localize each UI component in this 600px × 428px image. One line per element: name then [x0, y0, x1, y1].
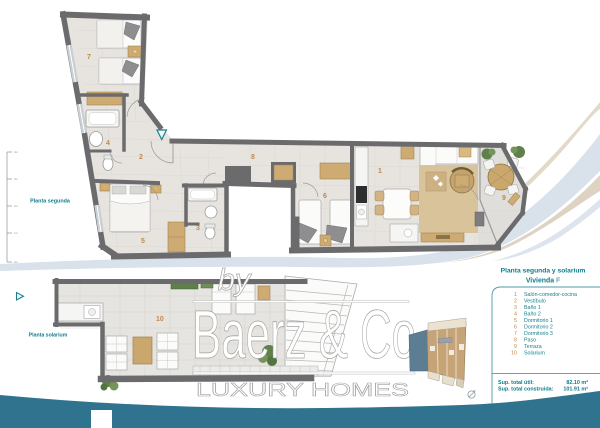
- svg-text:Sup. total construida:: Sup. total construida:: [498, 387, 554, 393]
- svg-text:3: 3: [514, 305, 517, 311]
- svg-text:Baño 1: Baño 1: [524, 305, 541, 311]
- svg-text:9: 9: [514, 344, 517, 350]
- svg-text:Terraza: Terraza: [524, 344, 542, 350]
- svg-text:Baño 2: Baño 2: [524, 312, 541, 318]
- svg-text:6: 6: [514, 325, 517, 331]
- svg-text:Dormitorio 1: Dormitorio 1: [524, 318, 553, 324]
- svg-text:Baerz & Co: Baerz & Co: [192, 296, 416, 373]
- svg-text:Planta segunda y solarium: Planta segunda y solarium: [501, 268, 586, 275]
- svg-text:10: 10: [156, 316, 164, 323]
- svg-text:10: 10: [511, 351, 517, 357]
- svg-text:Vestíbulo: Vestíbulo: [524, 299, 546, 305]
- svg-text:2m: 2m: [14, 204, 19, 208]
- svg-text:8: 8: [251, 154, 255, 161]
- svg-text:3m: 3m: [14, 177, 19, 181]
- svg-text:2: 2: [514, 299, 517, 305]
- svg-text:Sup. total útil:: Sup. total útil:: [498, 380, 534, 386]
- svg-text:8: 8: [514, 338, 517, 344]
- svg-text:7: 7: [514, 331, 517, 337]
- svg-text:Salón-comedor-cocina: Salón-comedor-cocina: [524, 292, 577, 298]
- svg-text:LUXURY HOMES: LUXURY HOMES: [196, 380, 409, 400]
- svg-text:0m: 0m: [14, 260, 19, 264]
- svg-text:5: 5: [141, 238, 145, 245]
- svg-text:7: 7: [87, 54, 91, 61]
- svg-text:Paso: Paso: [524, 338, 536, 344]
- svg-text:2: 2: [139, 154, 143, 161]
- svg-text:9: 9: [502, 195, 506, 202]
- svg-text:1: 1: [378, 168, 382, 175]
- svg-text:101.91 m²: 101.91 m²: [563, 387, 588, 393]
- svg-text:4m: 4m: [14, 150, 19, 154]
- svg-text:Vivienda F: Vivienda F: [526, 278, 560, 285]
- svg-text:Dormitorio 3: Dormitorio 3: [524, 331, 553, 337]
- svg-text:Planta solarium: Planta solarium: [29, 333, 68, 339]
- svg-text:4: 4: [514, 312, 517, 318]
- svg-text:1: 1: [514, 292, 517, 298]
- svg-text:Solarium: Solarium: [524, 351, 545, 357]
- svg-text:3: 3: [196, 225, 200, 232]
- svg-text:1m: 1m: [14, 231, 19, 235]
- svg-text:Planta segunda: Planta segunda: [30, 199, 71, 205]
- svg-text:82.10 m²: 82.10 m²: [566, 380, 588, 386]
- svg-text:by: by: [218, 262, 253, 297]
- svg-text:4: 4: [106, 140, 110, 147]
- svg-text:6: 6: [323, 193, 327, 200]
- svg-text:5: 5: [514, 318, 517, 324]
- svg-text:Dormitorio 2: Dormitorio 2: [524, 325, 553, 331]
